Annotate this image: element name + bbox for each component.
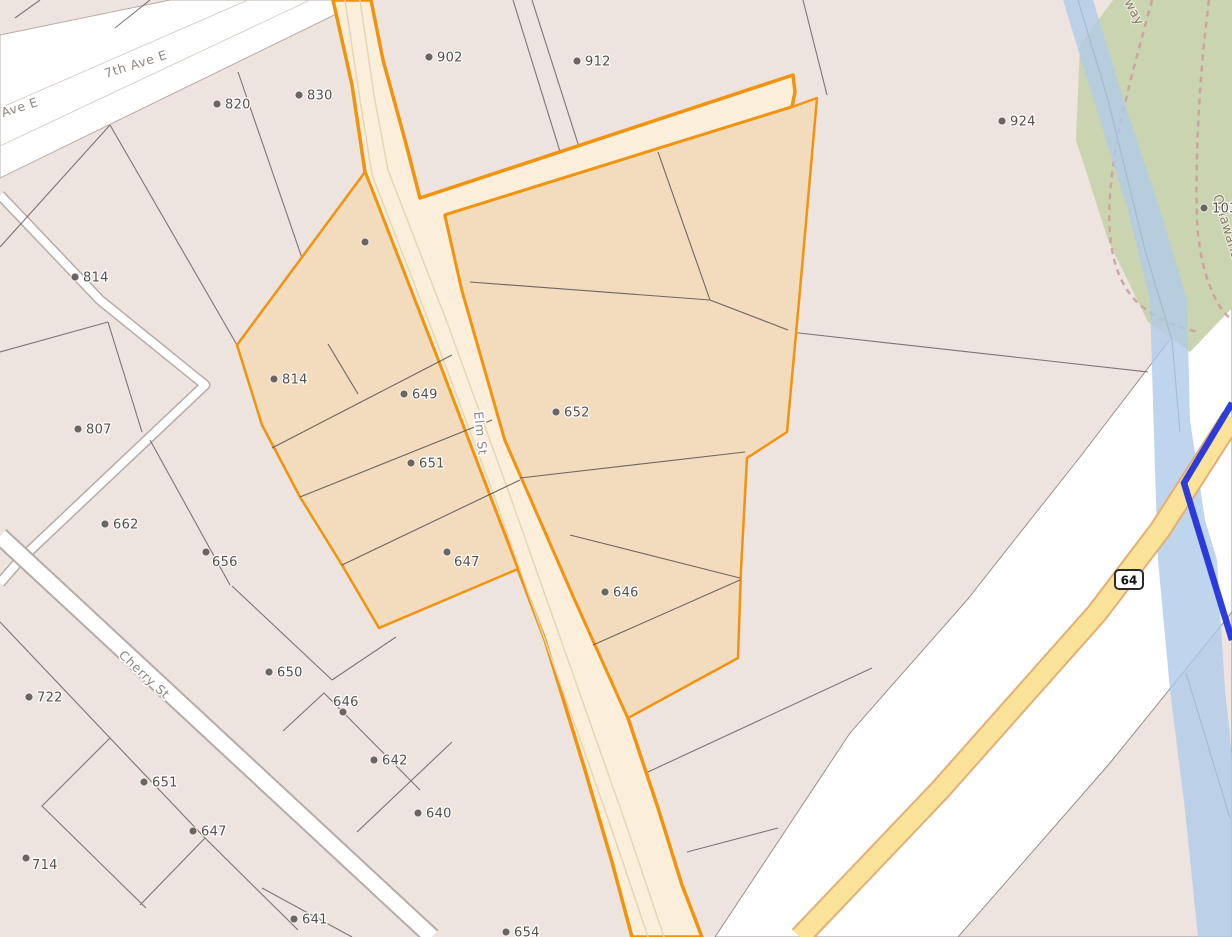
parcel-address-text: 647 [454, 555, 480, 570]
parcel-marker-dot [998, 117, 1006, 125]
parcel-marker-dot [74, 425, 82, 433]
parcel-marker-dot [140, 778, 148, 786]
parcel-marker-dot [552, 408, 560, 416]
parcel-address-text: 807 [86, 423, 112, 438]
parcel-address-text: 830 [307, 89, 333, 104]
parcel-marker-dot [361, 238, 369, 246]
parcel-address-text: 722 [37, 691, 63, 706]
route-shield-64: 64 [1115, 570, 1143, 589]
parcel-marker-dot [265, 668, 273, 676]
parcel-marker-dot [573, 57, 581, 65]
map-viewport[interactable]: 64 7th Ave EAve EElm StCherry StOklawaha… [0, 0, 1232, 937]
parcel-marker-dot [202, 548, 210, 556]
parcel-marker-dot [425, 53, 433, 61]
parcel-marker-dot [414, 809, 422, 817]
parcel-address-text: 924 [1010, 115, 1036, 130]
parcel-address-text: 820 [225, 98, 251, 113]
parcel-label [361, 238, 369, 246]
parcel-marker-dot [502, 928, 510, 936]
parcel-address-text: 912 [585, 55, 611, 70]
parcel-address-text: 646 [613, 586, 639, 601]
parcel-marker-dot [71, 273, 79, 281]
parcel-marker-dot [295, 91, 303, 99]
parcel-address-text: 656 [212, 555, 238, 570]
parcel-address-text: 103 [1212, 202, 1232, 217]
parcel-address-text: 647 [201, 825, 227, 840]
parcel-address-text: 652 [564, 406, 590, 421]
parcel-marker-dot [25, 693, 33, 701]
parcel-address-text: 714 [32, 858, 58, 873]
parcel-address-text: 814 [282, 373, 308, 388]
parcel-marker-dot [213, 100, 221, 108]
parcel-address-text: 902 [437, 51, 463, 66]
parcel-address-text: 650 [277, 666, 303, 681]
parcel-marker-dot [290, 915, 298, 923]
parcel-marker-dot [270, 375, 278, 383]
parcel-marker-dot [101, 520, 109, 528]
parcel-address-text: 651 [419, 457, 445, 472]
parcel-address-text: 642 [382, 754, 408, 769]
parcel-marker-dot [601, 588, 609, 596]
parcel-address-text: 649 [412, 388, 438, 403]
parcel-address-text: 651 [152, 776, 178, 791]
parcel-marker-dot [443, 548, 451, 556]
map-canvas[interactable]: 64 7th Ave EAve EElm StCherry StOklawaha… [0, 0, 1232, 937]
parcel-address-text: 662 [113, 518, 139, 533]
parcel-address-text: 641 [302, 913, 328, 928]
parcel-address-text: 640 [426, 807, 452, 822]
parcel-address-text: 646 [333, 695, 359, 710]
parcel-marker-dot [370, 756, 378, 764]
route-shield-number: 64 [1121, 574, 1138, 588]
parcel-address-text: 654 [514, 926, 540, 937]
parcel-marker-dot [22, 854, 30, 862]
parcel-marker-dot [1200, 204, 1208, 212]
parcel-address-text: 814 [83, 271, 109, 286]
parcel-marker-dot [189, 827, 197, 835]
parcel-marker-dot [400, 390, 408, 398]
parcel-marker-dot [407, 459, 415, 467]
